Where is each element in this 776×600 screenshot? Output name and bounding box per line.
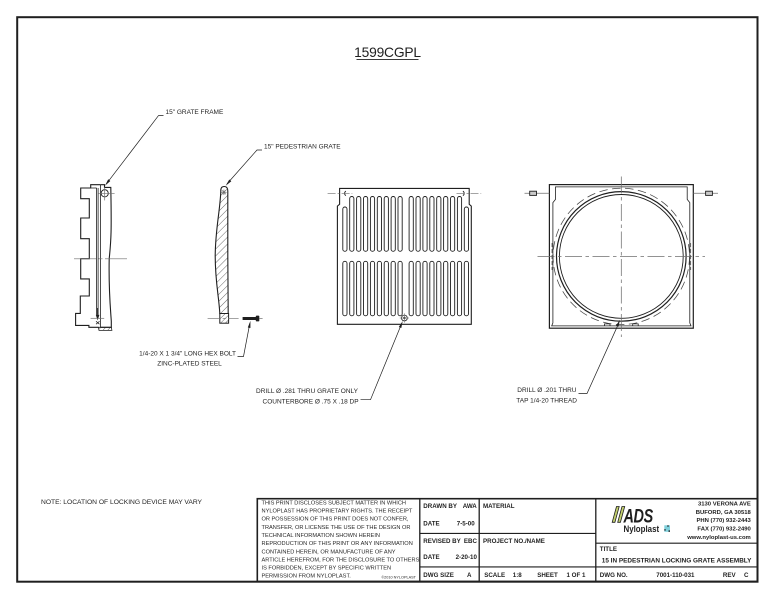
svg-text:REV: REV [723, 572, 737, 579]
svg-text:COUNTERBORE Ø .75 X .18 DP: COUNTERBORE Ø .75 X .18 DP [263, 398, 359, 405]
svg-text:C: C [744, 572, 749, 579]
svg-text:DATE: DATE [423, 521, 439, 528]
svg-text:SCALE: SCALE [484, 572, 505, 579]
svg-text:ARTICLE HEREFROM, FOR THE DISC: ARTICLE HEREFROM, FOR THE DISCLOSURE TO … [262, 557, 420, 563]
svg-text:AWA: AWA [463, 503, 478, 510]
svg-text:PHN (770) 932-2443: PHN (770) 932-2443 [696, 518, 751, 524]
svg-text:A: A [467, 572, 472, 579]
svg-text:REVISED BY: REVISED BY [423, 538, 461, 545]
svg-text:REPRODUCTION OF THIS PRINT OR: REPRODUCTION OF THIS PRINT OR ANY INFORM… [262, 541, 413, 547]
svg-text:7-5-00: 7-5-00 [457, 521, 475, 528]
svg-text:DWG SIZE: DWG SIZE [423, 572, 454, 579]
svg-text:DRILL Ø .281 THRU GRATE ONLY: DRILL Ø .281 THRU GRATE ONLY [256, 388, 359, 395]
svg-text:7001-110-031: 7001-110-031 [656, 572, 695, 579]
svg-text:ZINC-PLATED STEEL: ZINC-PLATED STEEL [157, 361, 222, 368]
svg-text:15" PEDESTRIAN GRATE: 15" PEDESTRIAN GRATE [264, 143, 341, 150]
svg-text:1:8: 1:8 [513, 572, 523, 579]
svg-text:Nyloplast: Nyloplast [624, 524, 660, 535]
svg-text:NOTE: LOCATION OF LOCKING DEV: NOTE: LOCATION OF LOCKING DEVICE MAY VAR… [41, 499, 203, 506]
svg-text:PROJECT NO./NAME: PROJECT NO./NAME [483, 538, 545, 545]
svg-text:CONTAINED HEREIN, OR MANUFACTU: CONTAINED HEREIN, OR MANUFACTURE OF ANY [262, 549, 396, 555]
svg-text:IS FORBIDDEN, EXCEPT BY SPECIF: IS FORBIDDEN, EXCEPT BY SPECIFIC WRITTEN [262, 566, 392, 572]
svg-text:1 OF 1: 1 OF 1 [567, 572, 586, 579]
svg-text:EBC: EBC [464, 538, 478, 545]
svg-text:1599CGPL: 1599CGPL [354, 45, 421, 60]
svg-text:OR POSSESSION OF THIS PRINT DO: OR POSSESSION OF THIS PRINT DOES NOT CON… [262, 517, 409, 523]
svg-text:DRILL Ø .201 THRU: DRILL Ø .201 THRU [517, 387, 577, 394]
svg-text:MATERIAL: MATERIAL [483, 503, 515, 510]
svg-text:1/4-20 X 1 3/4" LONG HEX BOLT: 1/4-20 X 1 3/4" LONG HEX BOLT [139, 351, 236, 358]
svg-text:TAP 1/4-20 THREAD: TAP 1/4-20 THREAD [516, 398, 577, 405]
svg-text:©2010 NYLOPLAST: ©2010 NYLOPLAST [381, 576, 416, 580]
svg-text:DWG NO.: DWG NO. [600, 572, 628, 579]
svg-text:BUFORD, GA 30518: BUFORD, GA 30518 [696, 510, 752, 516]
svg-text:PERMISSION FROM NYLOPLAST.: PERMISSION FROM NYLOPLAST. [262, 574, 352, 580]
svg-text:www.nyloplast-us.com: www.nyloplast-us.com [686, 535, 751, 541]
svg-text:2-20-10: 2-20-10 [456, 554, 478, 561]
svg-text:DRAWN BY: DRAWN BY [423, 503, 458, 510]
svg-text:15 IN PEDESTRIAN LOCKING GRATE: 15 IN PEDESTRIAN LOCKING GRATE ASSEMBLY [602, 557, 752, 564]
svg-text:DATE: DATE [423, 554, 439, 561]
svg-text:NYLOPLAST HAS PROPRIETARY RIGH: NYLOPLAST HAS PROPRIETARY RIGHTS. THE RE… [262, 509, 413, 515]
svg-text:TITLE: TITLE [600, 546, 617, 553]
svg-text:SHEET: SHEET [537, 572, 558, 579]
svg-text:TECHNICAL INFORMATION SHOWN HE: TECHNICAL INFORMATION SHOWN HEREIN [262, 533, 380, 539]
svg-text:TRANSFER, OR LICENSE THE USE O: TRANSFER, OR LICENSE THE USE OF THE DESI… [262, 525, 411, 531]
svg-text:FAX (770) 932-2490: FAX (770) 932-2490 [697, 527, 751, 533]
svg-text:3130 VERONA AVE: 3130 VERONA AVE [698, 502, 751, 508]
svg-text:15" GRATE FRAME: 15" GRATE FRAME [166, 109, 224, 116]
svg-text:THIS PRINT DISCLOSES SUBJECT M: THIS PRINT DISCLOSES SUBJECT MATTER IN W… [262, 500, 406, 506]
